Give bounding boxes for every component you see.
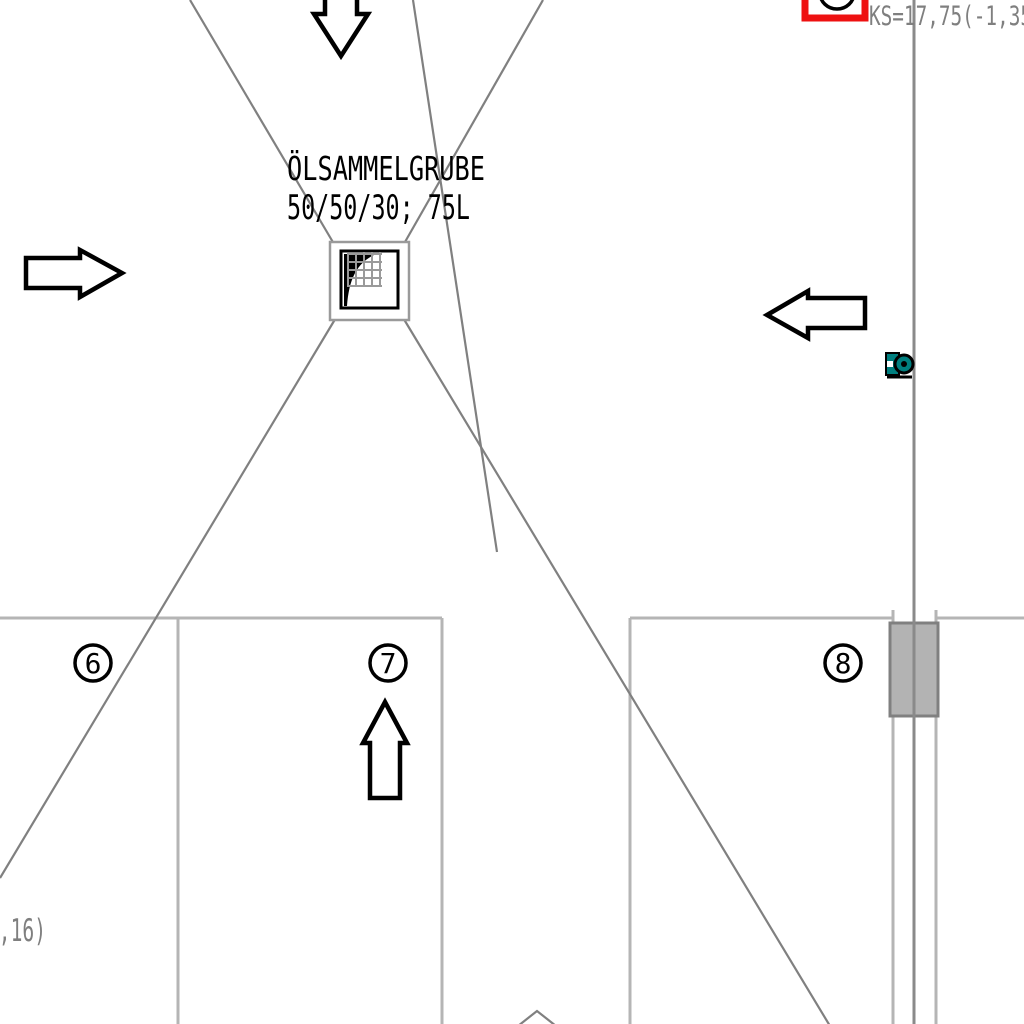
flow-arrow-left-icon: [767, 291, 865, 338]
oil-pit-label-line1: ÖLSAMMELGRUBE: [287, 148, 485, 188]
floor-drain-symbol: [330, 242, 409, 320]
hydrant-cap-center: [901, 361, 907, 367]
flow-arrow-down-icon: [314, 0, 368, 56]
hydrant-symbol: [886, 353, 913, 377]
oil-pit-label-line2: 50/50/30; 75L: [287, 188, 470, 228]
site-plan-canvas: 6 7 8 ÖLSAMMELGRUBE 50/50/30; 75L KS=17,…: [0, 0, 1024, 1024]
partial-level-note: 1,16): [0, 913, 46, 949]
partial-arrow-bottom: [518, 1011, 556, 1024]
grid-bubble-7-label: 7: [380, 647, 397, 680]
red-marker-box: [805, 0, 865, 18]
level-note: KS=17,75(-1,35: [869, 1, 1024, 32]
grid-bubble-6: 6: [75, 645, 111, 681]
grid-bubble-6-label: 6: [85, 647, 102, 680]
slope-line-d: [0, 316, 337, 878]
grid-bubble-8-label: 8: [835, 647, 852, 680]
hydrant-notch: [887, 361, 893, 367]
grid-bubble-8: 8: [825, 645, 861, 681]
flow-arrow-right-icon: [26, 250, 122, 297]
slope-line-b: [413, 0, 497, 552]
site-plan-view: 6 7 8 ÖLSAMMELGRUBE 50/50/30; 75L KS=17,…: [0, 0, 1024, 1024]
grid-bubble-7: 7: [370, 645, 406, 681]
flow-arrow-up-icon: [363, 702, 407, 798]
slope-line-e: [402, 316, 830, 1024]
wall-lines: [0, 610, 1024, 1024]
